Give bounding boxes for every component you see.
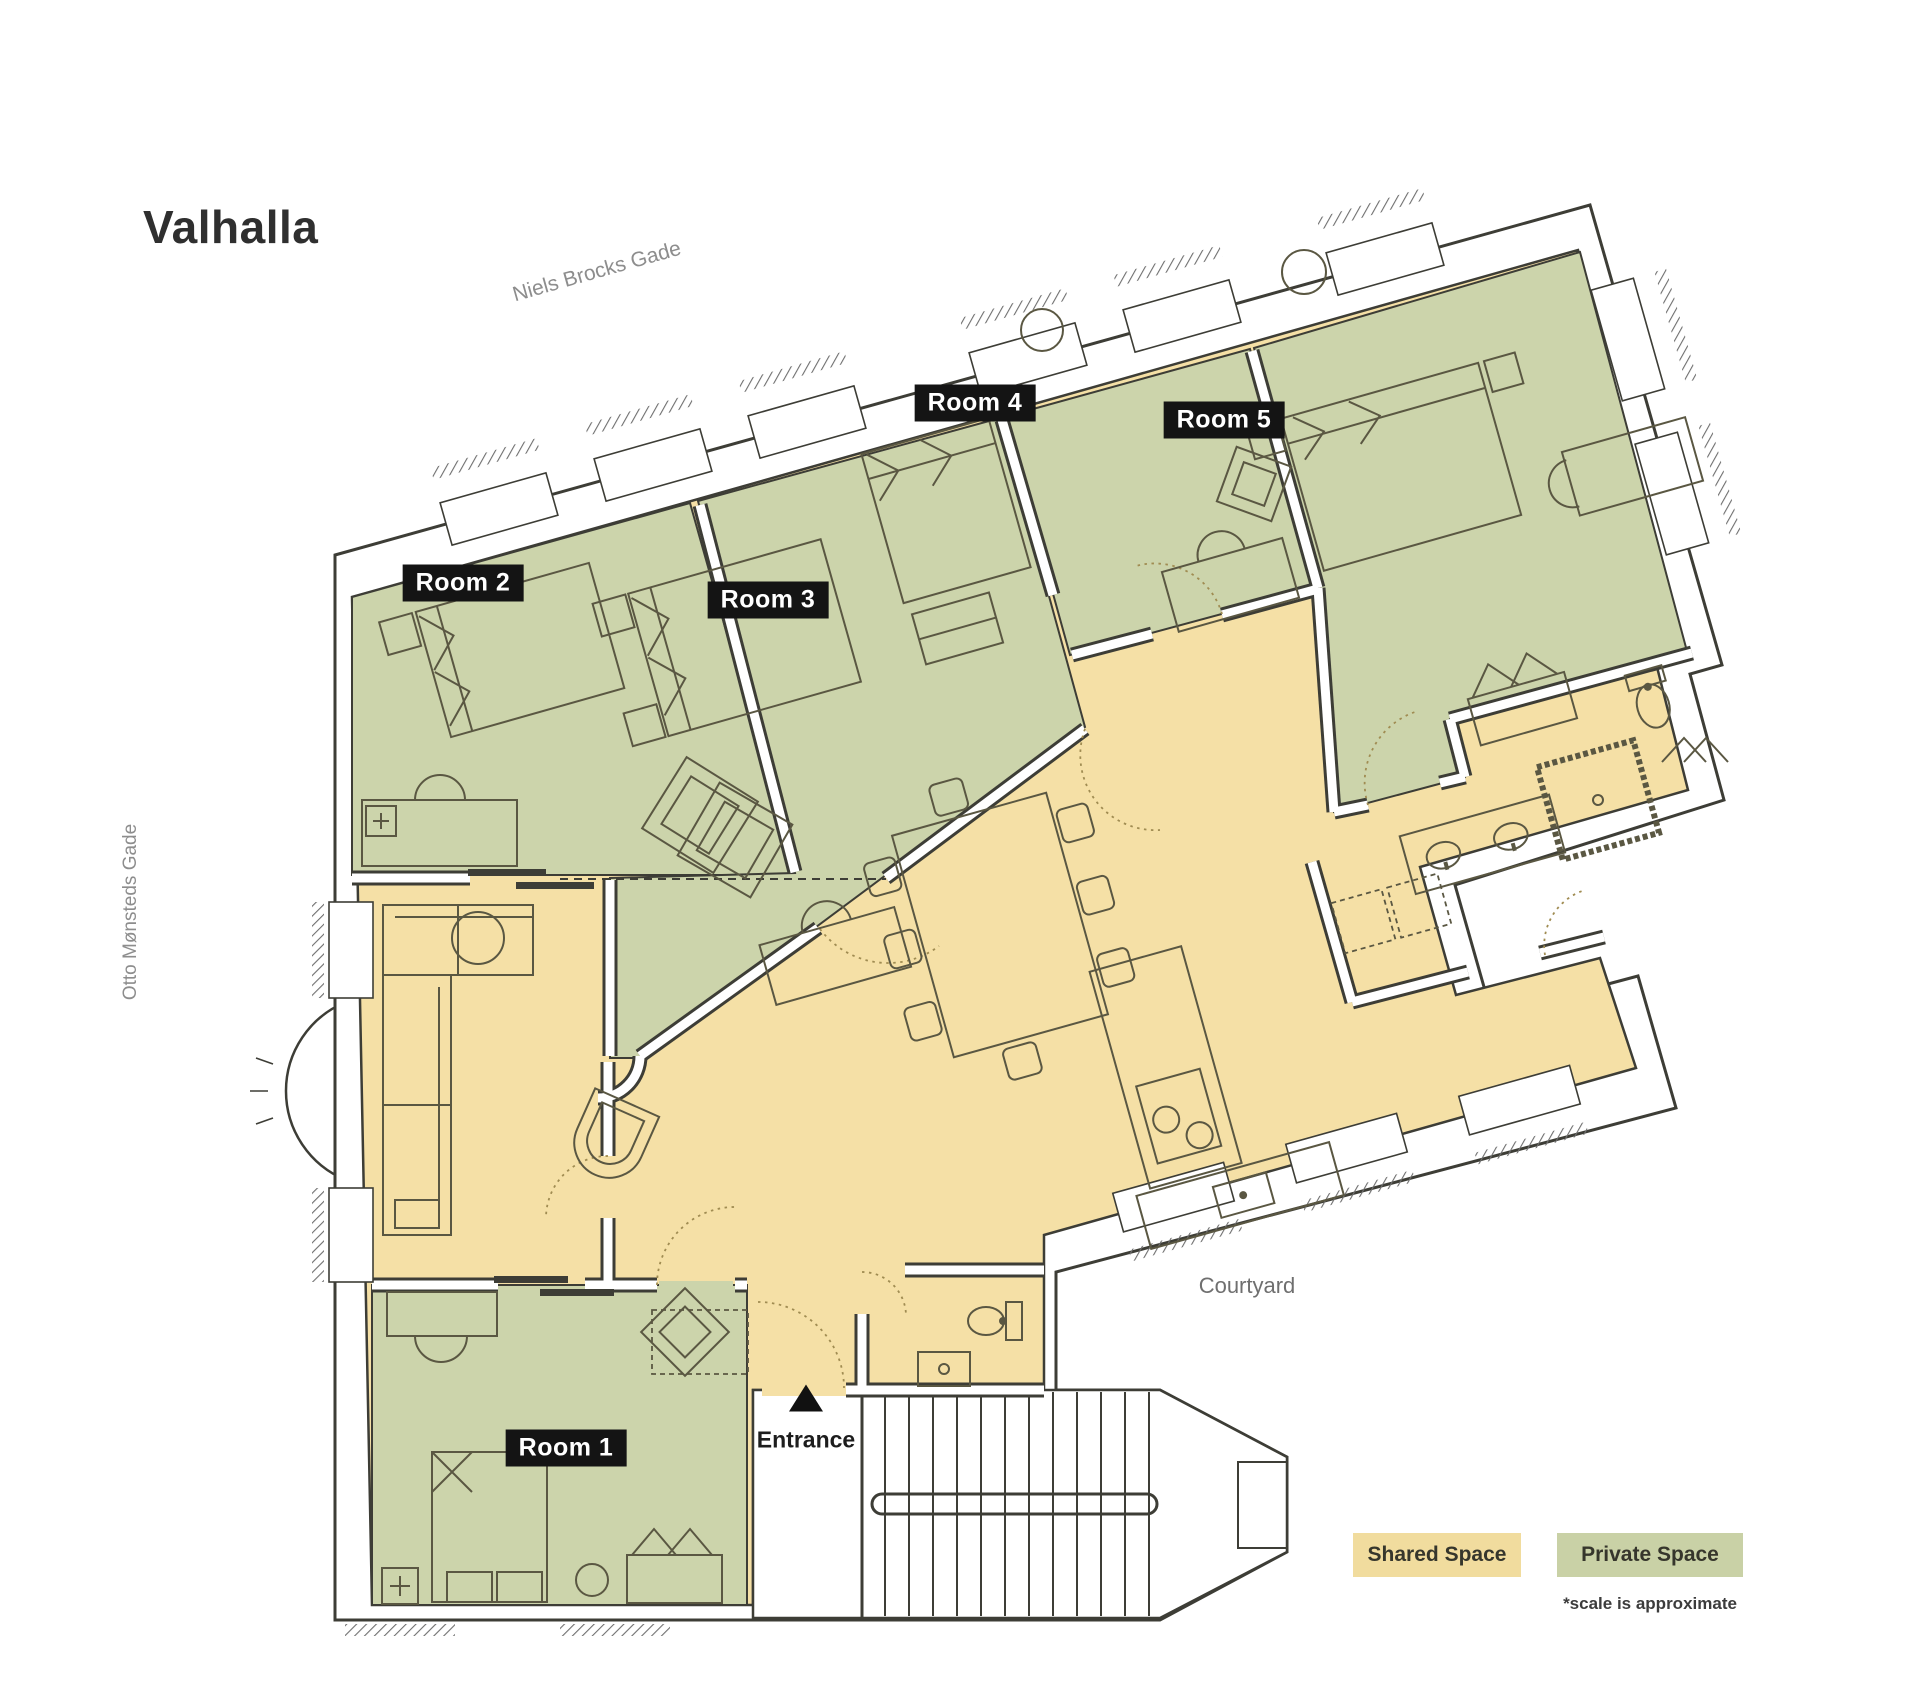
floor-plan-canvas bbox=[0, 0, 1920, 1699]
page-title: Valhalla bbox=[143, 200, 318, 254]
stairwell bbox=[753, 1390, 1287, 1618]
room-2-label: Room 2 bbox=[403, 565, 524, 602]
legend-private-space: Private Space bbox=[1557, 1533, 1743, 1577]
entrance-arrow-icon bbox=[789, 1385, 823, 1412]
room-4-label: Room 4 bbox=[915, 385, 1036, 422]
room-3-label: Room 3 bbox=[708, 582, 829, 619]
room1-door-gap bbox=[659, 1281, 733, 1289]
floor-plan-page: Valhalla Niels Brocks Gade Otto Mønsteds… bbox=[0, 0, 1920, 1699]
legend-shared-space: Shared Space bbox=[1353, 1533, 1521, 1577]
bay-window bbox=[250, 1002, 348, 1180]
room-5-label: Room 5 bbox=[1164, 402, 1285, 439]
room-1-label: Room 1 bbox=[506, 1430, 627, 1467]
street-label-left: Otto Mønsteds Gade bbox=[120, 824, 142, 1000]
scale-note: *scale is approximate bbox=[1563, 1594, 1737, 1614]
entrance-label: Entrance bbox=[757, 1427, 855, 1454]
courtyard-label: Courtyard bbox=[1199, 1273, 1296, 1299]
